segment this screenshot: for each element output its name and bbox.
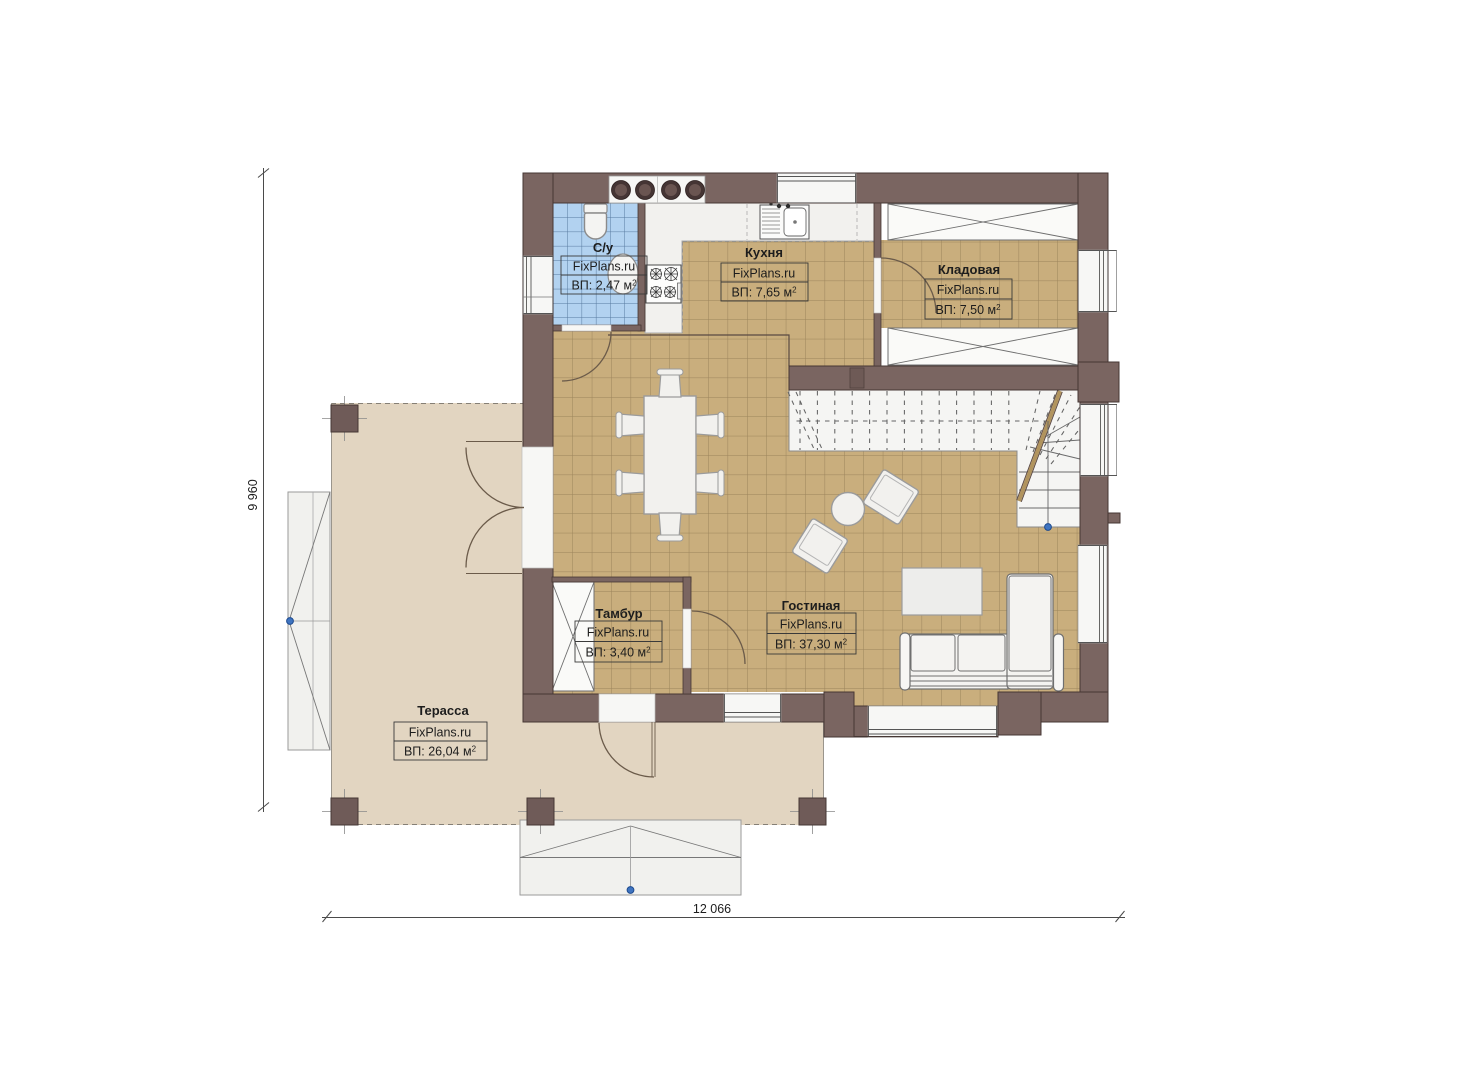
svg-text:ВП: 26,04 м2: ВП: 26,04 м2 <box>404 745 477 759</box>
svg-text:FixPlans.ru: FixPlans.ru <box>573 260 636 274</box>
svg-text:FixPlans.ru: FixPlans.ru <box>937 283 1000 297</box>
svg-text:12 066: 12 066 <box>693 902 731 916</box>
svg-text:Кладовая: Кладовая <box>938 262 1000 277</box>
svg-text:FixPlans.ru: FixPlans.ru <box>733 267 796 281</box>
svg-text:ВП: 3,40 м2: ВП: 3,40 м2 <box>585 646 651 660</box>
svg-text:FixPlans.ru: FixPlans.ru <box>409 726 472 740</box>
svg-text:ВП: 2,47 м2: ВП: 2,47 м2 <box>571 279 637 293</box>
svg-text:ВП: 7,50 м2: ВП: 7,50 м2 <box>935 303 1001 317</box>
svg-text:ВП: 7,65 м2: ВП: 7,65 м2 <box>731 286 797 300</box>
svg-text:Терасса: Терасса <box>417 703 469 718</box>
svg-text:ВП: 37,30 м2: ВП: 37,30 м2 <box>775 638 848 652</box>
svg-text:9 960: 9 960 <box>246 479 260 510</box>
svg-text:С/у: С/у <box>593 240 614 255</box>
svg-text:FixPlans.ru: FixPlans.ru <box>587 626 650 640</box>
svg-text:Тамбур: Тамбур <box>595 606 642 621</box>
svg-text:Кухня: Кухня <box>745 245 783 260</box>
svg-text:FixPlans.ru: FixPlans.ru <box>780 618 843 632</box>
svg-text:Гостиная: Гостиная <box>782 598 841 613</box>
